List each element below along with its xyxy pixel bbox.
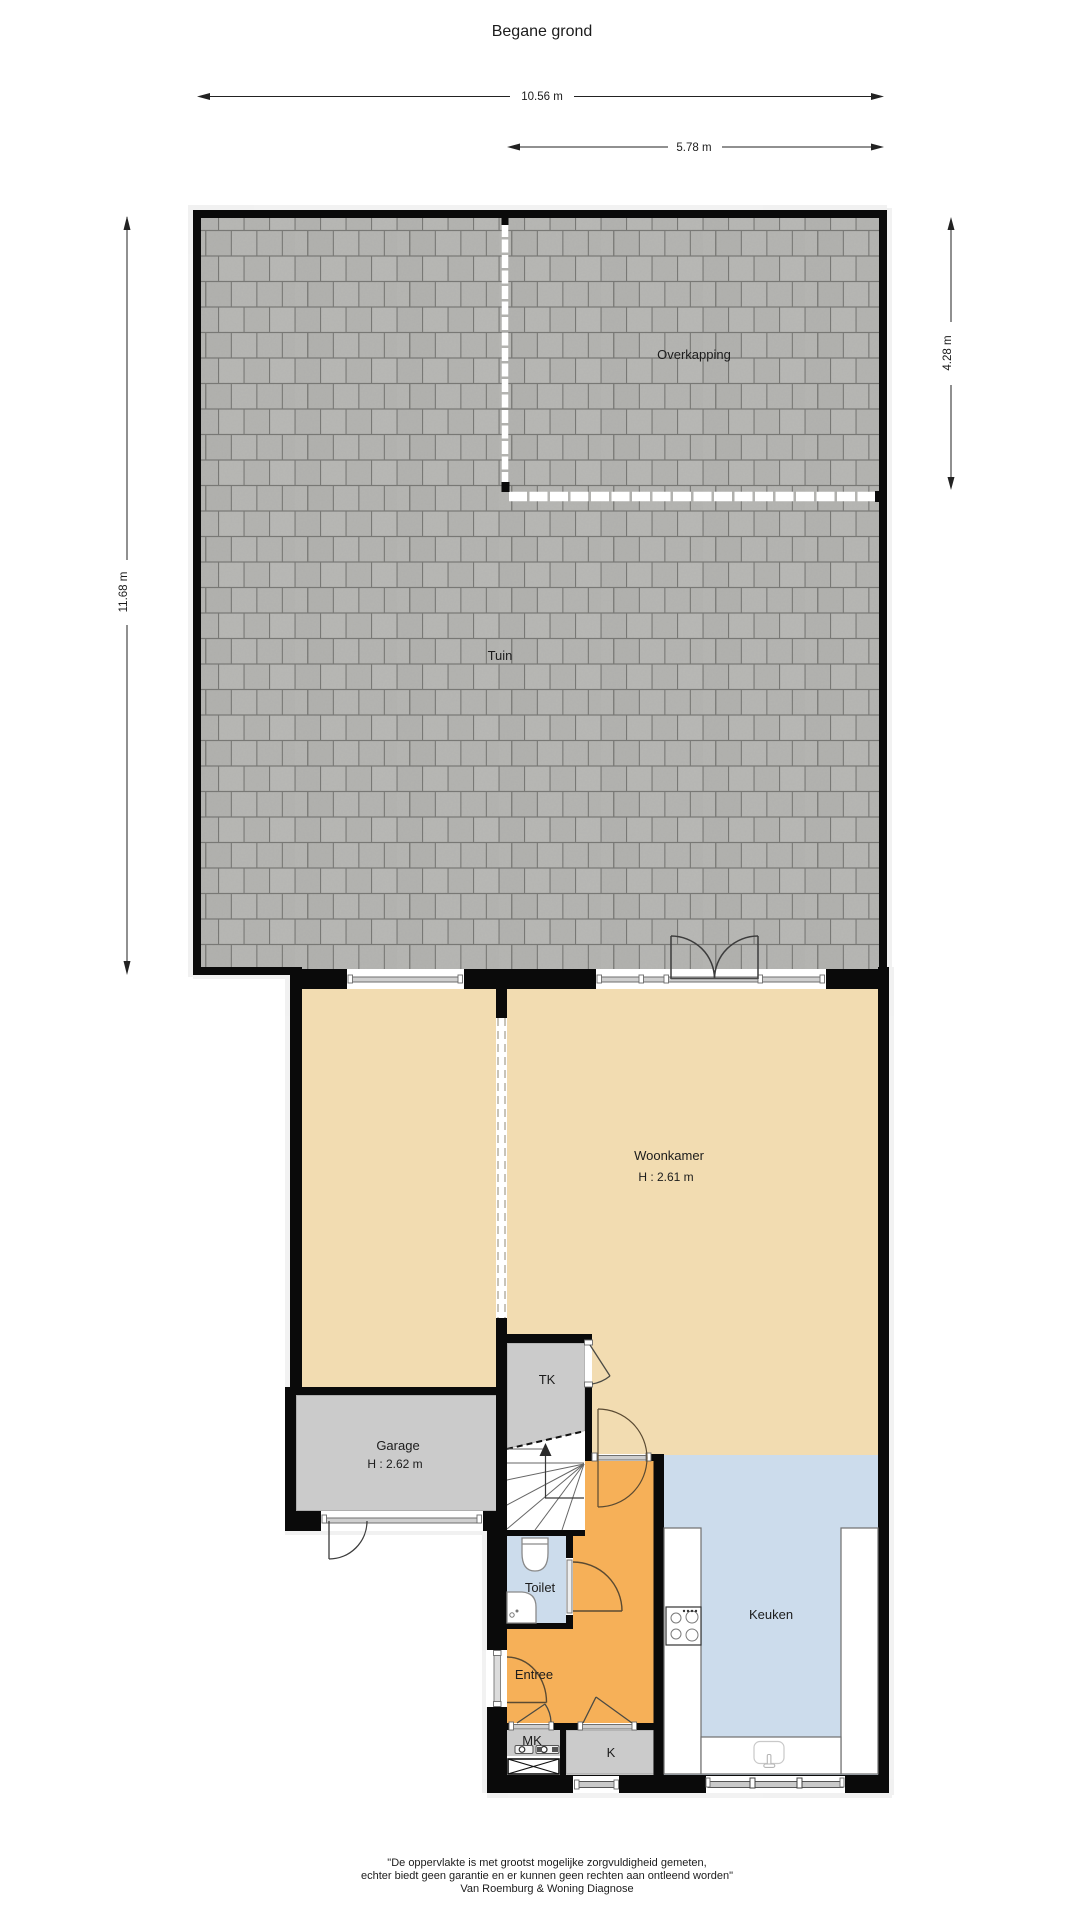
svg-text:"De oppervlakte is met grootst: "De oppervlakte is met grootst mogelijke…	[387, 1857, 706, 1869]
svg-text:4.28 m: 4.28 m	[942, 335, 954, 370]
svg-text:Garage: Garage	[376, 1438, 419, 1453]
svg-text:Entree: Entree	[515, 1667, 553, 1682]
svg-text:TK: TK	[539, 1372, 556, 1387]
svg-text:echter biedt geen garantie en: echter biedt geen garantie en er kunnen …	[361, 1870, 733, 1882]
svg-text:11.68 m: 11.68 m	[118, 572, 130, 613]
svg-text:MK: MK	[522, 1733, 542, 1748]
svg-text:Woonkamer: Woonkamer	[634, 1148, 705, 1163]
svg-text:Tuin: Tuin	[488, 648, 513, 663]
svg-text:H : 2.61 m: H : 2.61 m	[638, 1170, 693, 1184]
svg-text:Overkapping: Overkapping	[657, 347, 731, 362]
svg-text:Keuken: Keuken	[749, 1607, 793, 1622]
svg-text:10.56 m: 10.56 m	[521, 91, 563, 103]
svg-text:Begane grond: Begane grond	[492, 23, 593, 40]
svg-text:Van Roemburg & Woning Diagnose: Van Roemburg & Woning Diagnose	[460, 1883, 633, 1895]
svg-text:Toilet: Toilet	[525, 1580, 556, 1595]
svg-text:H : 2.62 m: H : 2.62 m	[367, 1457, 422, 1471]
svg-text:5.78 m: 5.78 m	[676, 142, 711, 154]
svg-text:K: K	[607, 1745, 616, 1760]
